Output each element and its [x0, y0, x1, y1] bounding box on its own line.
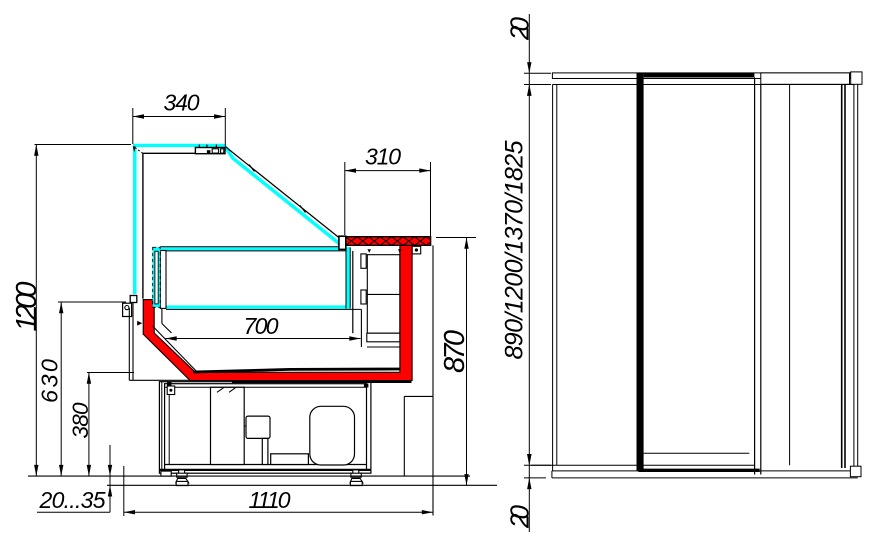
svg-text:340: 340: [164, 90, 200, 116]
svg-text:1200: 1200: [11, 281, 43, 331]
svg-text:890/1200/1370/1825: 890/1200/1370/1825: [501, 140, 529, 359]
svg-text:380: 380: [68, 402, 93, 438]
svg-text:310: 310: [365, 144, 401, 170]
svg-text:1110: 1110: [249, 487, 291, 513]
svg-text:20...35: 20...35: [39, 487, 106, 513]
svg-text:870: 870: [439, 330, 471, 373]
svg-text:20: 20: [504, 504, 534, 529]
svg-text:630: 630: [37, 359, 63, 403]
svg-text:20: 20: [504, 16, 534, 41]
svg-text:700: 700: [244, 313, 279, 339]
